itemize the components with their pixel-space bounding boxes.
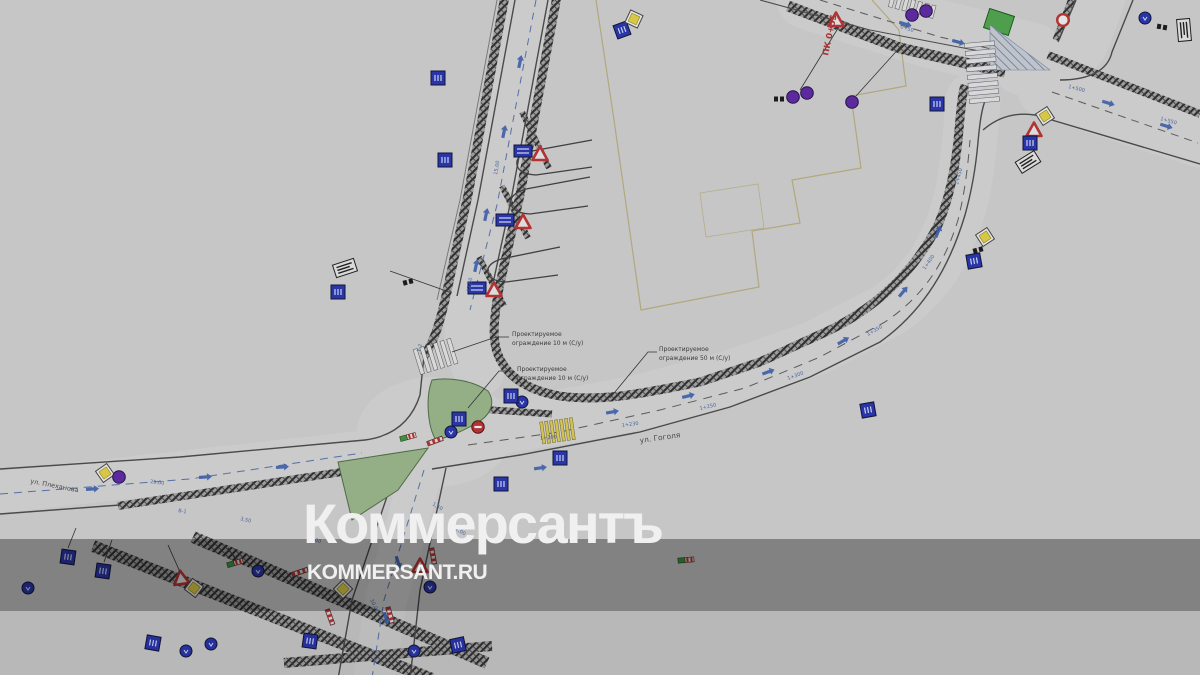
purple-circle-icon [113,471,126,484]
red-ring-icon [1057,14,1069,26]
blue-square-icon [504,389,518,403]
black-bars-icon [1157,24,1168,31]
article-hero-image: 1+2301+2001+2501+3001+3501+4001+4501+500… [0,0,1200,675]
annotation-1-line1: Проектируемое [512,331,562,338]
kommersant-logo: Коммерсантъ [303,496,662,552]
black-bars-icon [774,97,784,102]
annotation-3-line1: Проектируемое [659,346,709,353]
blue-circle-icon [445,426,457,438]
blue-square-icon [553,451,567,465]
blue-square-icon [966,253,982,269]
table-sign-icon [333,258,358,277]
blue-circle-icon [1139,12,1151,24]
annotation-1-line2: ограждение 10 м (С/у) [512,340,583,347]
annotation-2-line1: Проектируемое [517,366,567,373]
table-sign-icon [1015,151,1041,174]
blue-rect-icon [514,145,532,157]
bottom-shade [0,611,1200,675]
purple-circle-icon [801,87,814,100]
annotation-3-line2: ограждение 50 м (С/у) [659,355,730,362]
purple-circle-icon [920,5,933,18]
red-triangle-icon [1027,123,1042,137]
dimension-label: В-1 [178,508,187,515]
black-bars-icon [973,246,984,253]
kommersant-site-label: KOMMERSANT.RU [307,562,487,583]
blue-square-icon [452,412,466,426]
blue-square-icon [331,285,345,299]
dimension-label: 3,50 [240,516,252,525]
blue-rect-icon [496,214,514,226]
blue-square-icon [494,477,508,491]
blue-square-icon [438,153,452,167]
blue-square-icon [1023,136,1037,150]
purple-circle-icon [906,9,919,22]
blue-square-icon [431,71,445,85]
blue-square-icon [860,402,876,418]
table-sign-icon [1177,18,1192,41]
purple-circle-icon [846,96,859,109]
no-entry-icon [472,421,484,433]
purple-circle-icon [787,91,800,104]
annotation-2-line2: ограждение 10 м (С/у) [517,375,588,382]
black-bars-icon [403,278,414,285]
lane-arrow-icon [534,463,548,472]
street-label-gogolya: ул. Гоголя [639,430,681,445]
blue-square-icon [930,97,944,111]
